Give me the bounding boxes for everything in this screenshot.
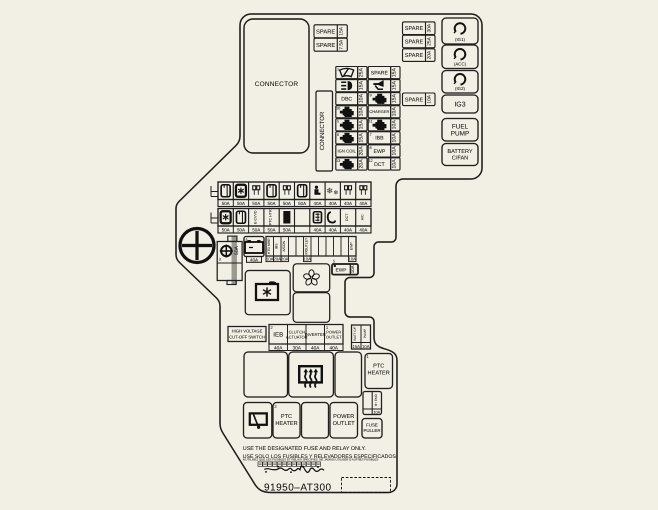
svg-text:50A: 50A [268,227,276,232]
svg-text:2: 2 [270,325,273,330]
svg-text:10: 10 [336,107,340,111]
svg-text:HTD MRR: HTD MRR [267,238,271,254]
svg-text:10A: 10A [391,107,397,117]
svg-text:10A: 10A [350,265,355,273]
svg-text:50A: 50A [283,201,291,206]
svg-text:30A: 30A [426,23,432,32]
svg-text:SPARE: SPARE [371,70,389,76]
svg-text:USE THE DESIGNATED FUSE AND RE: USE THE DESIGNATED FUSE AND RELAY ONLY. [243,446,366,452]
svg-text:40A: 40A [313,227,321,232]
svg-text:10A: 10A [349,257,357,262]
svg-text:10A: 10A [362,344,370,349]
svg-text:EWP: EWP [349,242,353,250]
svg-text:SPARE: SPARE [405,97,424,103]
svg-text:(ACC): (ACC) [454,62,467,67]
svg-text:15A: 15A [391,67,397,77]
svg-text:20A: 20A [358,146,364,156]
svg-text:40A: 40A [359,201,367,206]
svg-text:A/C: A/C [360,214,364,220]
svg-text:CUT-OFF SWITCH: CUT-OFF SWITCH [229,335,265,340]
svg-text:15A: 15A [358,80,364,90]
svg-text:20A: 20A [426,50,432,59]
svg-text:7: 7 [369,133,371,137]
svg-text:DCT: DCT [345,213,349,221]
svg-text:50A: 50A [268,201,276,206]
svg-text:40A: 40A [329,345,338,351]
svg-text:FUSE: FUSE [366,423,378,428]
svg-text:10A: 10A [391,120,397,130]
svg-text:PTC: PTC [373,364,384,370]
svg-text:40A: 40A [311,345,320,351]
svg-text:HEATER: HEATER [368,371,390,377]
svg-text:SPARE: SPARE [405,26,424,32]
svg-text:12: 12 [368,159,372,163]
svg-text:15A: 15A [338,26,344,35]
svg-text:10A: 10A [358,94,364,104]
svg-text:91950–AT300: 91950–AT300 [264,483,332,494]
svg-text:11: 11 [369,120,373,124]
svg-text:13: 13 [336,159,340,163]
svg-text:N'UTILISEZ QUE LES FUSIBLES ET: N'UTILISEZ QUE LES FUSIBLES ET RELAIS SP… [243,458,379,462]
svg-text:2: 2 [274,404,277,409]
svg-text:EWP: EWP [336,268,347,274]
svg-text:50A: 50A [234,245,240,255]
svg-text:HIGH VOLTAGE: HIGH VOLTAGE [232,329,263,334]
svg-text:40A: 40A [329,227,337,232]
svg-text:DCT: DCT [374,162,385,168]
svg-text:10A: 10A [358,107,364,117]
svg-text:CONNECTOR: CONNECTOR [319,111,326,150]
svg-text:A/CON: A/CON [282,240,286,251]
svg-text:40A: 40A [250,257,259,262]
svg-text:50A: 50A [283,227,291,232]
svg-text:PUMP: PUMP [451,131,469,138]
svg-text:PTC: PTC [281,414,292,420]
svg-text:BATTERY: BATTERY [447,149,473,155]
svg-text:HEATER: HEATER [275,421,297,427]
svg-text:BATT C/F: BATT C/F [353,327,357,341]
svg-text:50A: 50A [222,201,230,206]
svg-text:50A: 50A [252,227,260,232]
svg-text:5: 5 [337,120,339,124]
svg-text:20A: 20A [281,257,289,262]
svg-text:IG3: IG3 [454,102,465,109]
svg-text:OUTLET: OUTLET [326,334,342,339]
svg-text:50A: 50A [298,201,306,206]
svg-text:10A: 10A [391,159,397,169]
svg-text:OUTLET: OUTLET [333,421,356,427]
svg-text:50A: 50A [237,201,245,206]
svg-text:8: 8 [369,146,371,150]
svg-text:SPARE: SPARE [405,53,424,59]
svg-text:40A: 40A [344,201,352,206]
svg-text:7.5A: 7.5A [338,39,344,50]
svg-text:15A: 15A [391,80,397,90]
svg-text:10A: 10A [391,146,397,156]
svg-text:POWER: POWER [333,414,354,420]
svg-text:CHARGER: CHARGER [369,109,389,114]
svg-text:INVERTER: INVERTER [305,332,326,337]
svg-text:PTC HTR: PTC HTR [269,209,273,225]
svg-text:30A: 30A [292,345,301,351]
svg-text:50A: 50A [252,201,260,206]
svg-text:SPARE: SPARE [405,40,424,46]
svg-text:10A: 10A [426,94,432,103]
svg-text:50A: 50A [237,227,245,232]
svg-text:CONNECTOR: CONNECTOR [255,81,299,88]
svg-text:15A: 15A [352,344,360,349]
svg-text:9: 9 [369,94,371,98]
svg-text:B+ EMD: B+ EMD [374,393,378,406]
svg-text:1: 1 [337,68,339,72]
svg-text:1: 1 [366,354,369,359]
svg-text:15A: 15A [358,120,364,130]
svg-text:P/OUTLET: P/OUTLET [304,238,308,255]
svg-text:40A: 40A [329,201,337,206]
svg-text:PULLER: PULLER [363,428,380,433]
svg-text:E-CVVD: E-CVVD [253,210,257,224]
svg-text:(IG2): (IG2) [455,86,466,91]
svg-text:FUEL: FUEL [452,124,469,131]
svg-text:(IG1): (IG1) [455,37,466,42]
svg-text:IBB: IBB [375,136,384,142]
svg-text:20A: 20A [358,159,364,169]
svg-text:10A: 10A [391,133,397,143]
svg-text:40A: 40A [359,227,367,232]
svg-text:IGN COIL: IGN COIL [338,148,357,153]
svg-text:3: 3 [219,258,221,262]
svg-text:15A: 15A [391,94,397,104]
svg-text:IBS: IBS [274,243,278,249]
svg-text:EWP: EWP [373,149,385,155]
svg-text:SPARE: SPARE [316,42,335,49]
svg-text:IEB: IEB [273,331,283,338]
svg-text:50A: 50A [222,227,230,232]
svg-text:25A: 25A [426,36,432,45]
svg-text:40A: 40A [274,345,283,351]
svg-text:5: 5 [333,260,335,264]
svg-text:DBC: DBC [341,97,352,103]
svg-text:PUMP: PUMP [363,329,367,338]
svg-text:SPARE: SPARE [316,28,335,35]
svg-text:15A: 15A [358,133,364,143]
svg-text:40A: 40A [344,227,352,232]
svg-text:6: 6 [337,133,339,137]
svg-text:40A: 40A [313,201,321,206]
svg-text:25A: 25A [358,67,364,77]
svg-text:10A: 10A [304,257,312,262]
svg-text:10A: 10A [373,410,380,414]
svg-text:C/FAN: C/FAN [452,155,468,162]
